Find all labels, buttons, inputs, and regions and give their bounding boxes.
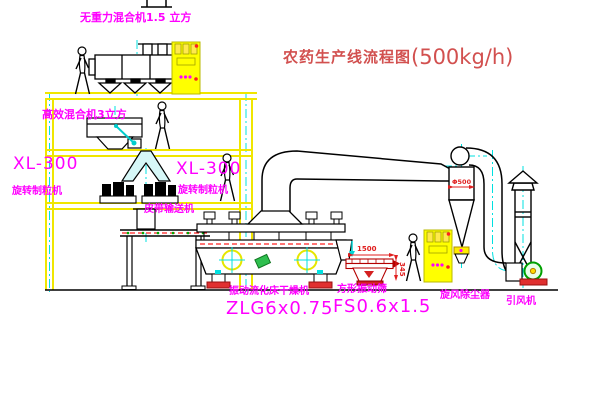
person-figure-floor3 bbox=[156, 102, 170, 149]
label-granulator-mid-name: 旋转制粒机 bbox=[178, 186, 228, 196]
label-granulator-left-name: 旋转制粒机 bbox=[12, 187, 62, 197]
control-cabinet-lower bbox=[424, 230, 452, 282]
label-granulator-mid-model: XL-300 bbox=[176, 161, 241, 178]
granulator-unit-left bbox=[100, 182, 136, 203]
process-flow-diagram: 农药生产线流程图(500kg/h) 无重力混合机1.5 立方 高效混合机3立方 … bbox=[0, 0, 600, 403]
label-sieve-model: FS0.6x1.5 bbox=[333, 298, 431, 316]
dryer-exhaust-duct bbox=[262, 151, 452, 213]
dim-sieve-height: 345 bbox=[398, 262, 405, 277]
high-efficiency-mixer bbox=[87, 118, 142, 149]
control-cabinet-upper bbox=[172, 42, 200, 94]
duct-hood bbox=[248, 211, 302, 224]
label-dryer-name: 振动流化床干燥机 bbox=[229, 287, 309, 297]
dim-sieve-width: 1500 bbox=[357, 246, 376, 253]
label-dryer-model: ZLG6x0.75 bbox=[226, 300, 334, 318]
person-figure-roof bbox=[76, 47, 90, 94]
title-capacity: (500kg/h) bbox=[411, 45, 513, 69]
induced-draft-fan bbox=[506, 263, 547, 286]
title-text: 农药生产线流程图 bbox=[283, 48, 411, 66]
label-granulator-left-model: XL-300 bbox=[13, 156, 78, 173]
label-high-eff-mixer: 高效混合机3立方 bbox=[42, 109, 127, 120]
label-fan: 引风机 bbox=[506, 297, 536, 307]
label-gravity-mixer: 无重力混合机1.5 立方 bbox=[80, 12, 191, 23]
label-cyclone: 旋风除尘器 bbox=[440, 291, 490, 301]
granulator-unit-right bbox=[142, 182, 178, 203]
dim-cyclone-diameter: Φ500 bbox=[452, 179, 471, 186]
label-belt-conveyor: 皮带输送机 bbox=[144, 205, 194, 215]
cyclone-outlet-duct bbox=[466, 148, 526, 281]
diagram-title: 农药生产线流程图(500kg/h) bbox=[283, 47, 513, 68]
label-sieve-name: 方形振动筛 bbox=[337, 285, 387, 295]
person-figure-ground bbox=[407, 234, 421, 281]
roof-vent bbox=[141, 0, 172, 7]
